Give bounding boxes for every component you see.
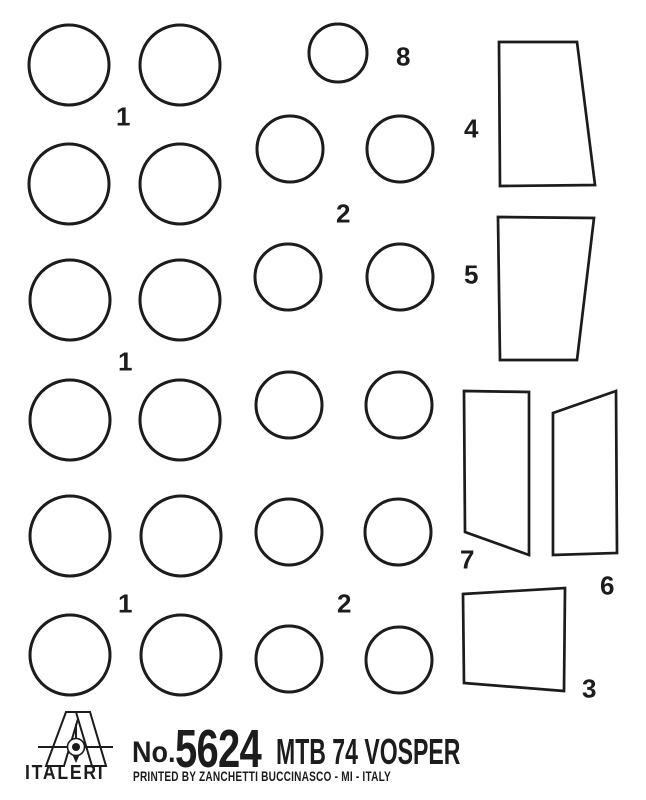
part-number-label: 7: [460, 546, 474, 572]
part-number-labels: 18245112763: [0, 0, 646, 800]
part-number-label: 1: [118, 348, 132, 374]
part-number-label: 6: [600, 572, 614, 598]
part-number-label: 4: [464, 115, 478, 141]
part-number-label: 2: [336, 200, 350, 226]
kit-title: MTB 74 VOSPER: [276, 734, 460, 770]
part-number-label: 3: [582, 675, 596, 701]
part-number-label: 1: [116, 103, 130, 129]
kit-number-prefix: No.: [132, 738, 175, 768]
mask-sheet-page: 18245112763 ITALERI No. 5624 MTB 74 VOSP…: [0, 0, 646, 800]
printed-by-line: PRINTED BY ZANCHETTI BUCCINASCO - MI - I…: [133, 769, 391, 783]
part-number-label: 2: [337, 590, 351, 616]
part-number-label: 5: [464, 261, 478, 287]
part-number-label: 8: [396, 43, 410, 69]
part-number-label: 1: [118, 590, 132, 616]
brand-wordmark: ITALERI: [25, 763, 104, 783]
